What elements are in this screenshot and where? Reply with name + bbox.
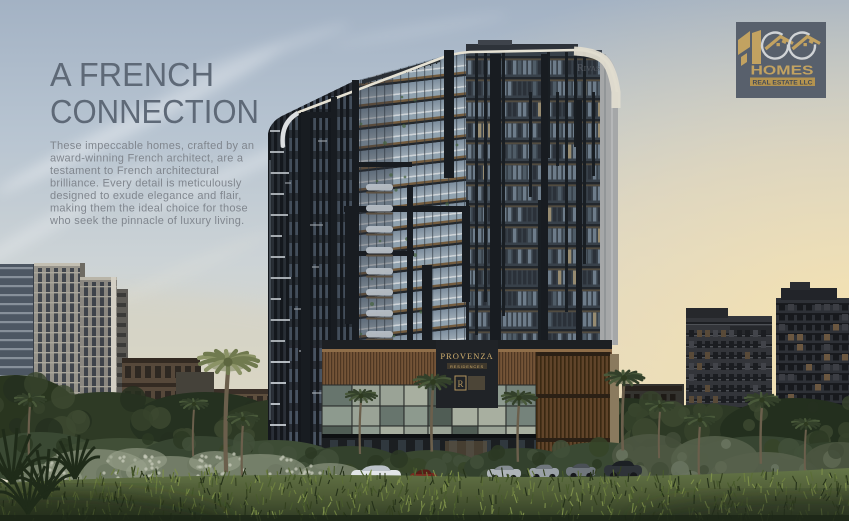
svg-text:HOMES: HOMES (751, 63, 814, 78)
svg-text:R: R (457, 379, 463, 389)
svg-text:RESIDENCES: RESIDENCES (450, 364, 484, 369)
svg-text:PROVENZA: PROVENZA (440, 351, 493, 361)
svg-text:testament to French architectu: testament to French architectural (50, 165, 219, 177)
svg-text:making them the ideal choice f: making them the ideal choice for those (50, 203, 248, 215)
svg-text:brilliance. Every detail is me: brilliance. Every detail is meticulously (50, 178, 242, 190)
svg-text:award-winning French architect: award-winning French architect, are a (50, 153, 244, 165)
svg-text:RIVAS: RIVAS (577, 63, 600, 74)
svg-text:who seek the pinnacle of luxur: who seek the pinnacle of luxury living. (49, 215, 244, 227)
svg-text:CONNECTION: CONNECTION (50, 93, 259, 130)
svg-text:REAL ESTATE LLC: REAL ESTATE LLC (753, 79, 814, 86)
svg-text:These impeccable homes, crafte: These impeccable homes, crafted by an (50, 140, 254, 152)
svg-text:designed to exude elegance and: designed to exude elegance and flair, (50, 190, 242, 202)
svg-text:A FRENCH: A FRENCH (50, 56, 214, 93)
